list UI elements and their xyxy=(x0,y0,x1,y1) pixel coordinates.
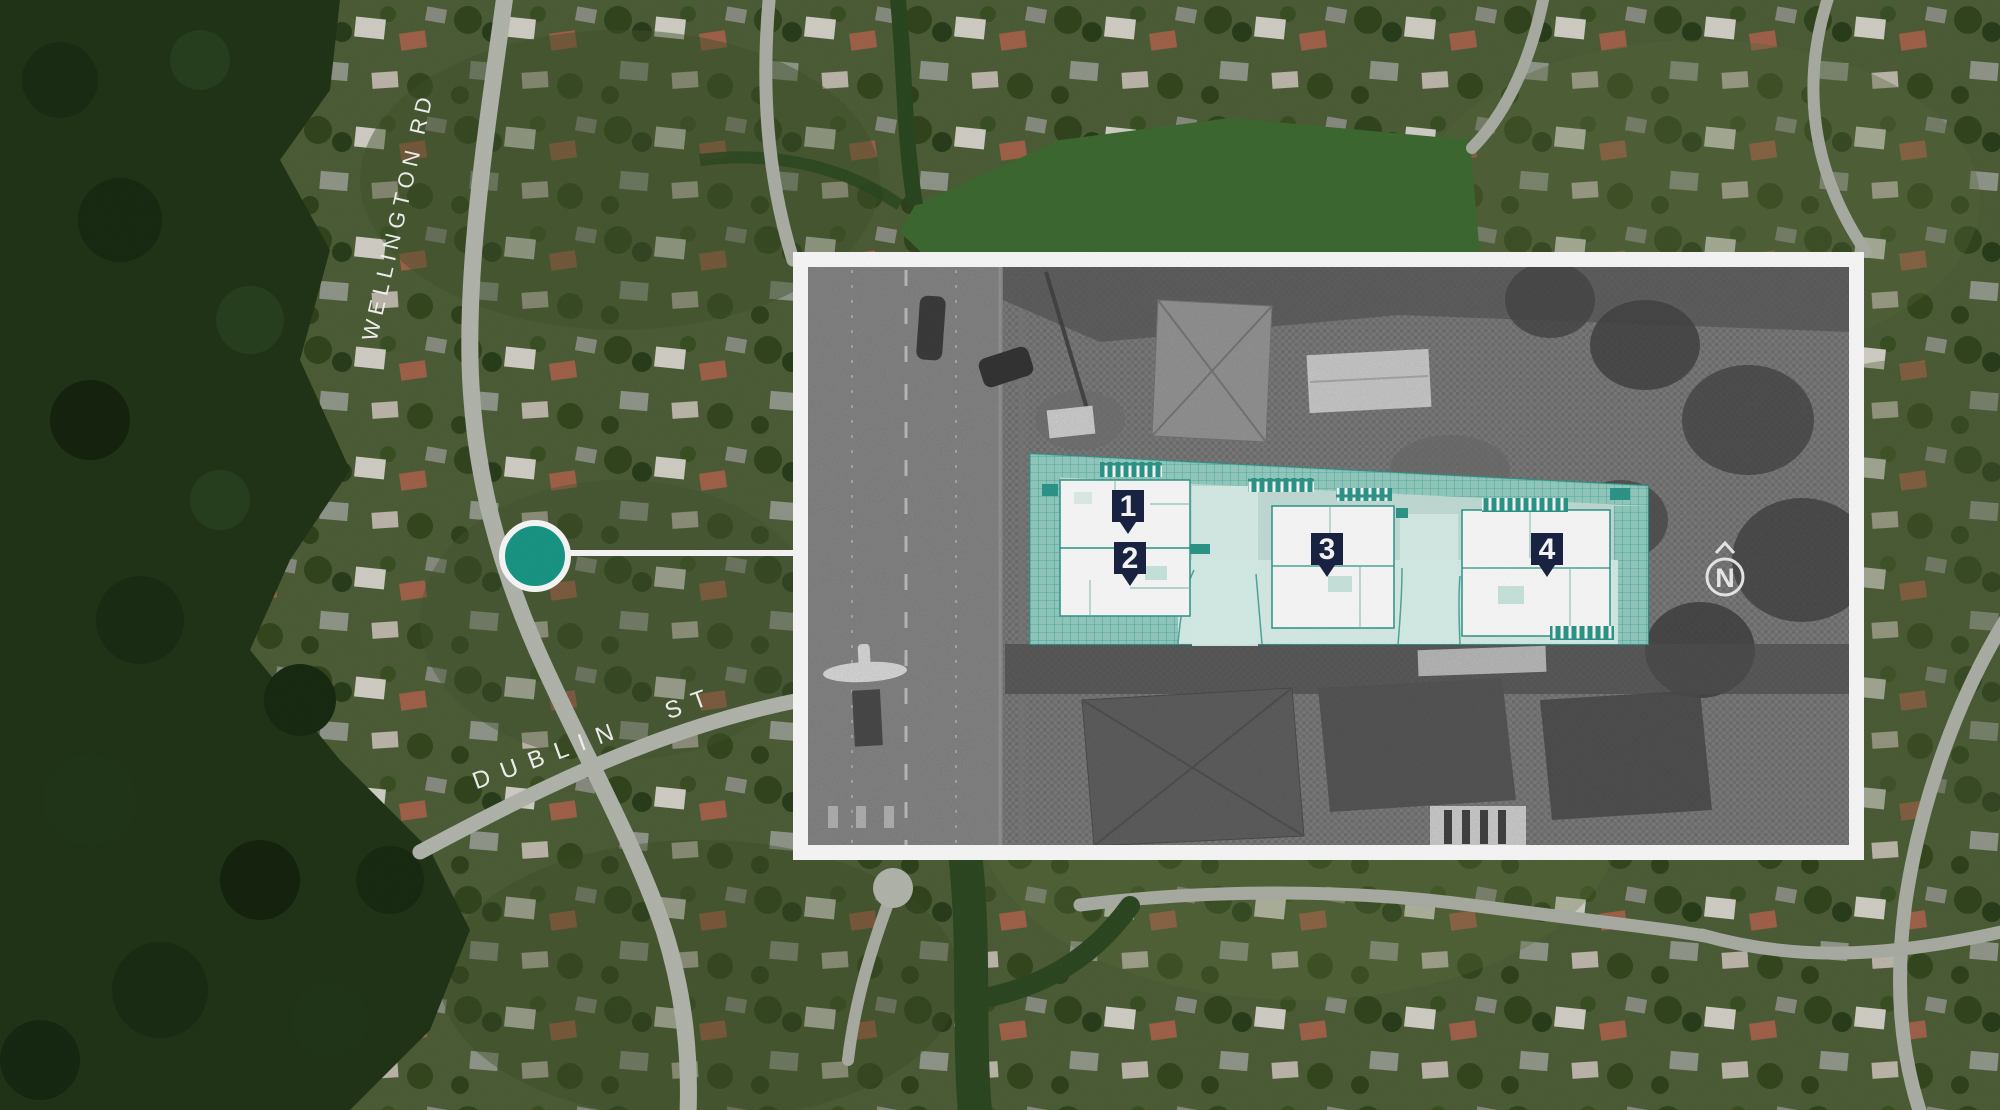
aerial-map-page: WELLINGTON RD DUBLIN ST xyxy=(0,0,2000,1110)
grain-overlay xyxy=(0,0,2000,1110)
